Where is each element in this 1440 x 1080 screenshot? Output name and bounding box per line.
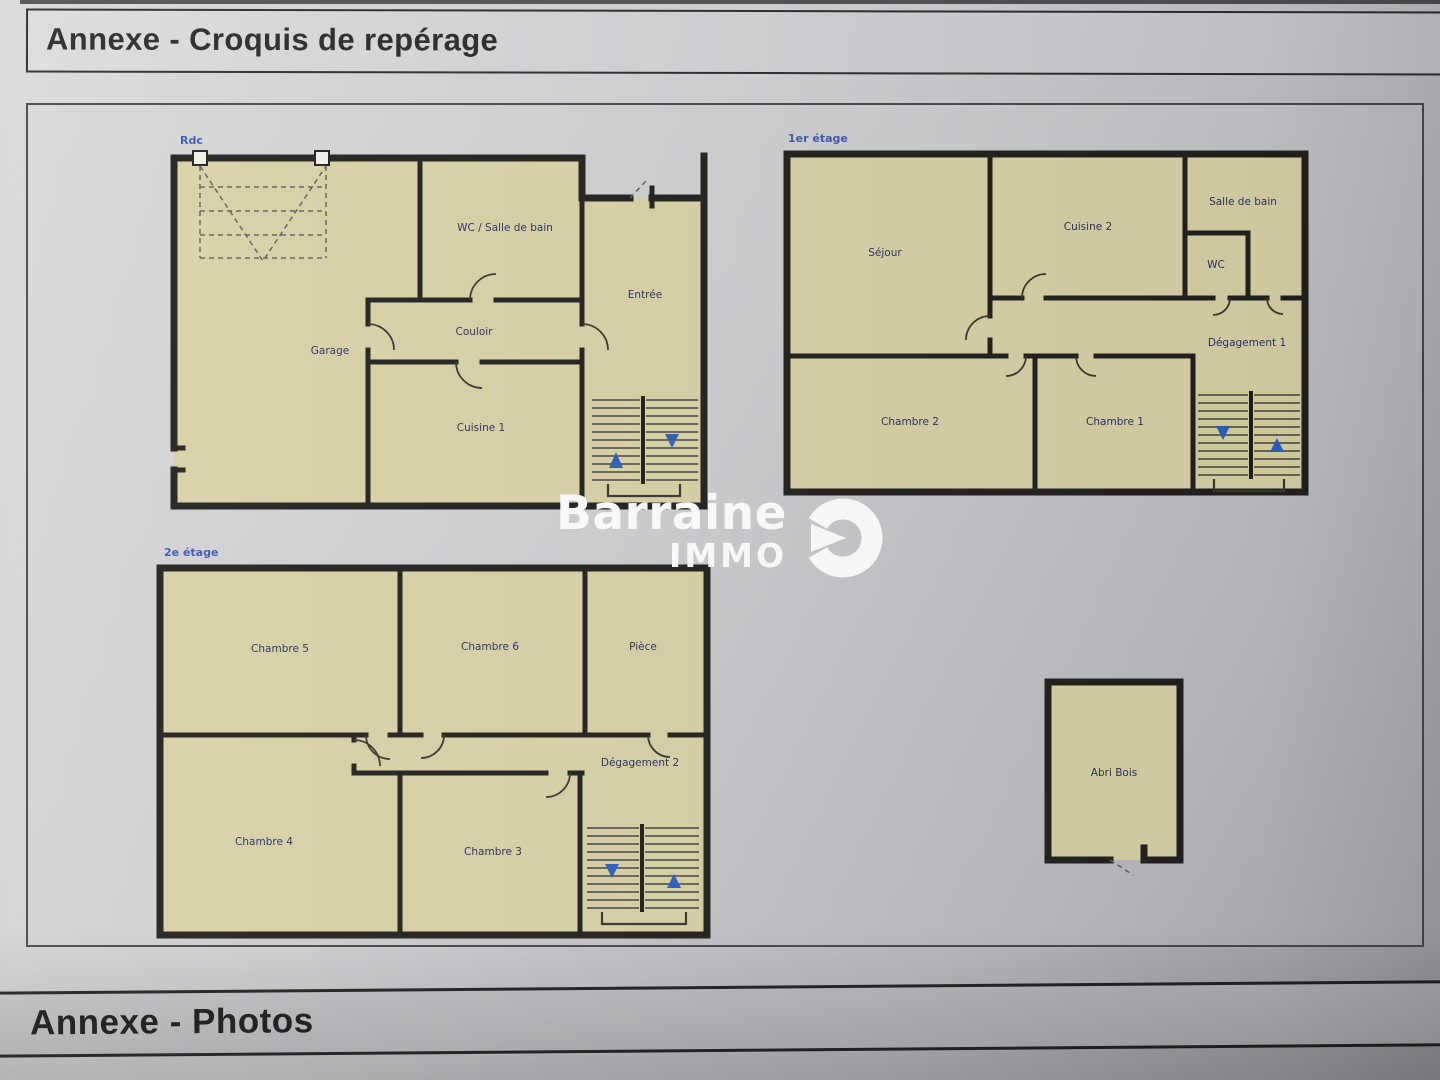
logo-text: Barraine IMMO: [556, 492, 787, 572]
floor-label-etage1: 1er étage: [788, 132, 848, 145]
rdc-garage-post-right: [315, 151, 329, 165]
rdc-floor-area: [174, 158, 704, 506]
room-label-entree: Entrée: [628, 289, 662, 301]
room-label-chambre6: Chambre 6: [461, 641, 519, 653]
abri-door-leaf: [1110, 860, 1133, 875]
room-label-sejour: Séjour: [868, 247, 902, 259]
header-bottom-bar: Annexe - Photos: [0, 980, 1440, 1057]
room-label-chambre3: Chambre 3: [464, 846, 522, 858]
header-top-bar: Annexe - Croquis de repérage: [26, 9, 1440, 76]
room-label-piece: Pièce: [629, 641, 657, 653]
room-label-wc: WC: [1207, 259, 1225, 271]
bottom-section-title: Annexe - Photos: [30, 1001, 314, 1042]
floorplan-abri-bois: Abri Bois: [1040, 670, 1190, 885]
room-label-degagement1: Dégagement 1: [1208, 337, 1286, 349]
room-label-cuisine1: Cuisine 1: [457, 422, 505, 434]
floor-label-etage2: 2e étage: [164, 546, 218, 559]
room-label-garage: Garage: [311, 345, 349, 357]
floor-label-rdc: Rdc: [180, 134, 203, 147]
rdc-entry-door-leaf: [630, 181, 646, 198]
room-label-abri-bois: Abri Bois: [1091, 767, 1137, 779]
floorplan-etage2: 2e étage Chambre 5 Chambre 6 Pièce Dégag…: [150, 540, 720, 940]
etage2-floor-area: [160, 568, 707, 935]
scan-top-edge-line: [20, 0, 1440, 4]
room-label-chambre2: Chambre 2: [881, 416, 939, 428]
brand-sub: IMMO: [669, 539, 787, 572]
floorplan-etage1: 1er étage Séjour Cuisine 2 Salle de bain…: [780, 128, 1325, 503]
room-label-chambre4: Chambre 4: [235, 836, 293, 848]
floorplan-rdc: Rdc Garage WC / Salle de bain Couloir Cu…: [168, 128, 713, 513]
room-label-degagement2: Dégagement 2: [601, 757, 679, 769]
room-label-wc-sdb: WC / Salle de bain: [457, 222, 553, 234]
room-label-chambre5: Chambre 5: [251, 643, 309, 655]
brand-mark-icon: [799, 494, 887, 582]
brand-name: Barraine: [556, 492, 787, 537]
room-label-sdb: Salle de bain: [1209, 196, 1277, 208]
page-title: Annexe - Croquis de repérage: [46, 22, 498, 58]
logo: Barraine IMMO: [556, 492, 887, 582]
room-label-chambre1: Chambre 1: [1086, 416, 1144, 428]
room-label-cuisine2: Cuisine 2: [1064, 221, 1112, 233]
room-label-couloir: Couloir: [456, 326, 494, 338]
rdc-garage-post-left: [193, 151, 207, 165]
